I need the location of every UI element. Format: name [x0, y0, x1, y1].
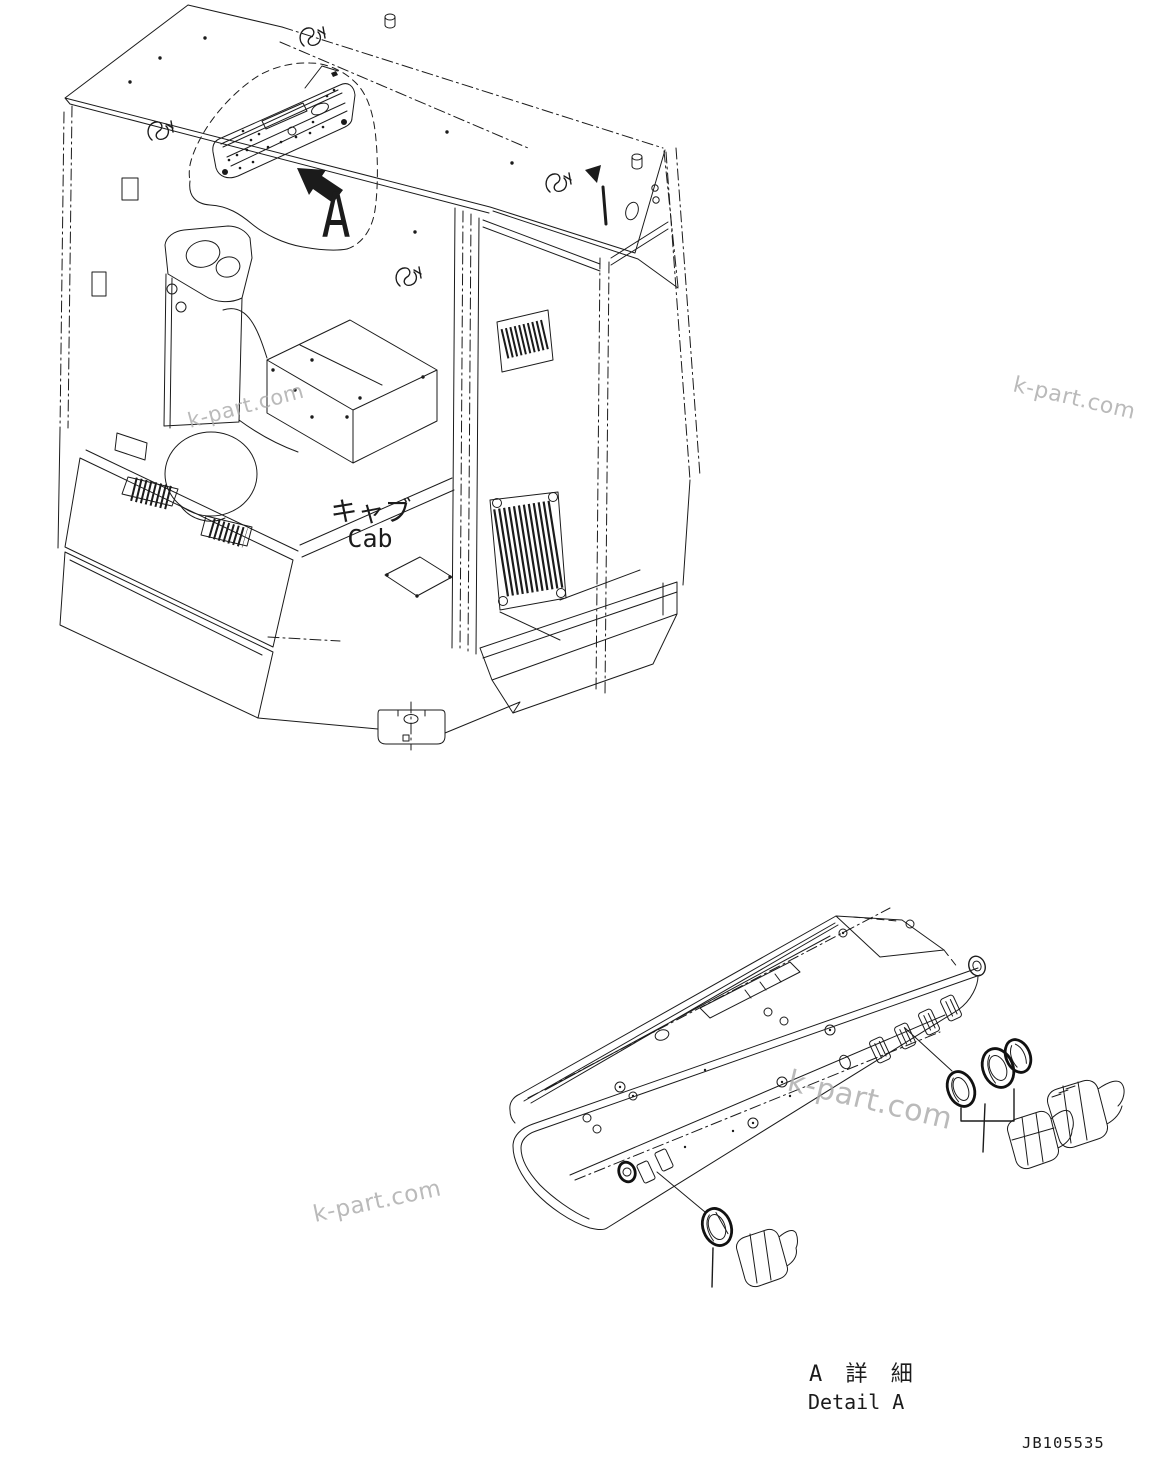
watermark-text: k-part.com: [1011, 372, 1138, 424]
switch-panel-end-bolt-1: [222, 169, 228, 175]
corner-joint-bar: [603, 187, 606, 224]
blank-plug-right-back: [1047, 1080, 1124, 1147]
s-hook-icon: [148, 121, 173, 140]
wire-clips: [148, 27, 571, 286]
switch-panel-oval: [310, 101, 331, 118]
switch-panel-hole: [288, 127, 296, 135]
rear-bench: [480, 582, 677, 713]
detail-label-ja: A 詳 細: [809, 1362, 918, 1387]
panel-end-knob: [966, 954, 988, 978]
panel-end-knob-inner: [972, 960, 983, 972]
cab-label-en: Cab: [347, 524, 392, 553]
cupholder-large: [183, 237, 223, 271]
vent-hatch-1: [133, 489, 170, 498]
roof-switch-panel: [213, 66, 355, 178]
floor-plate: [385, 557, 452, 596]
roof-corner-plate: [385, 14, 642, 169]
lower-front-panel: [60, 552, 273, 718]
captions: A 詳 細 Detail A JB105535: [808, 1362, 1105, 1452]
panel-plate-hidden: [853, 917, 958, 968]
cab-assembly-drawing: A キャブ Cab: [58, 5, 700, 750]
watermark-text: k-part.com: [784, 1064, 956, 1137]
grille-bolt-3: [499, 597, 508, 606]
switch-cap-3: [1001, 1036, 1036, 1077]
leader-bracket: [961, 1089, 1014, 1152]
watermarks: k-part.com k-part.com k-part.com k-part.…: [185, 372, 1138, 1227]
corner-weld-mark: [585, 165, 601, 183]
b-pillar: [452, 208, 479, 654]
left-pillar-hidden: [60, 106, 72, 430]
cab-interior: [60, 226, 677, 750]
switch-caps: [697, 1036, 1035, 1250]
leader-left-drop: [712, 1248, 713, 1287]
panel-screw-bosses: [583, 929, 847, 1147]
parts-diagram-page: A キャブ Cab: [0, 0, 1163, 1481]
c-pillar-hidden: [596, 258, 609, 694]
drawing-number: JB105535: [1022, 1434, 1105, 1452]
roof-outline: [65, 5, 678, 288]
blank-plug-right-front: [1007, 1110, 1073, 1168]
detail-callout-a: A: [189, 63, 377, 253]
corner-bolt-2: [653, 197, 659, 203]
s-hook-icon: [300, 27, 325, 46]
panel-rear-plate: [836, 916, 944, 957]
switch-panel-lines: [221, 66, 347, 166]
rear-unit-hatch: [504, 334, 547, 344]
callout-letter: A: [321, 180, 350, 252]
roof-corner-hole: [624, 201, 641, 222]
mounted-switch-cap: [616, 1160, 638, 1184]
grille-bolt-4: [557, 589, 566, 598]
floor-plate-marks: [387, 575, 450, 596]
vent-hatch-2: [211, 528, 245, 538]
switch-panel-end-bolt-2: [341, 119, 347, 125]
blank-plug-left: [736, 1229, 797, 1286]
cab-roof: [65, 5, 678, 288]
detail-label-en: Detail A: [808, 1390, 904, 1414]
panel-left-boot: [513, 1124, 607, 1230]
blower-scroll: [165, 432, 257, 516]
s-hook-icon: [396, 267, 421, 286]
rear-unit-box: [497, 310, 553, 372]
switch-panel-diamond: [331, 71, 338, 77]
b-pillar-hidden: [460, 211, 471, 652]
s-hook-icon: [546, 173, 571, 192]
grille-bolt-2: [549, 493, 558, 502]
panel-recess-strip: [700, 962, 800, 1018]
switch-cap-2: [977, 1044, 1020, 1092]
parts-diagram-canvas: A キャブ Cab: [0, 0, 1163, 1481]
watermark-text: k-part.com: [311, 1175, 444, 1228]
console-cupholder: [165, 226, 252, 302]
duct-curves: [223, 309, 298, 452]
leader-lines: [657, 1028, 1014, 1287]
rear-pillar-hidden: [666, 148, 700, 480]
floor-centerlines: [268, 637, 411, 750]
console-bolt-2: [176, 302, 186, 312]
grille-bolt-1: [493, 499, 502, 508]
detail-switch-panel: [510, 908, 988, 1230]
heater-grille-hatch: [500, 544, 557, 553]
